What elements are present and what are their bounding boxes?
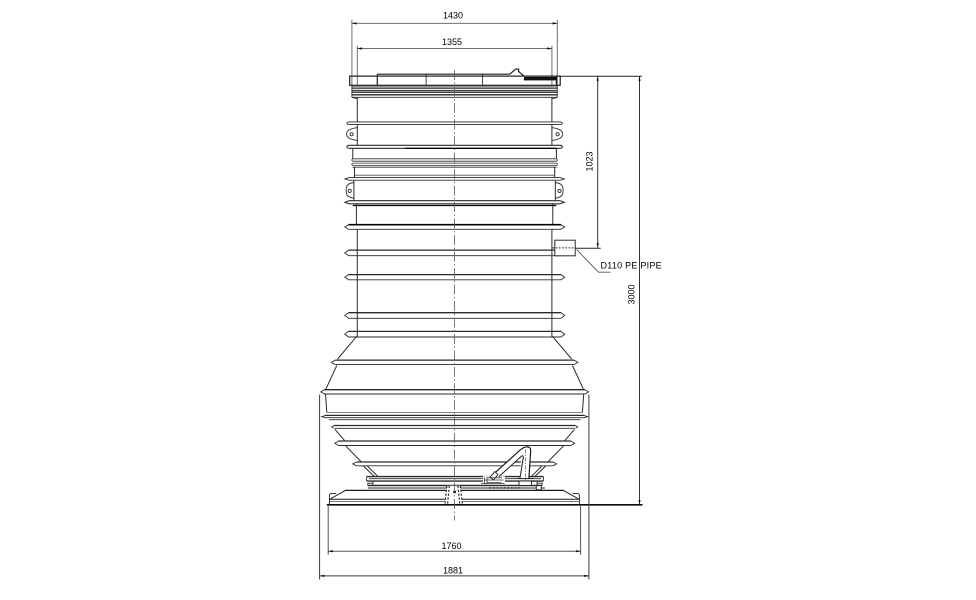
svg-text:1760: 1760	[441, 541, 461, 551]
svg-text:1355: 1355	[442, 37, 462, 47]
svg-text:D110 PE PIPE: D110 PE PIPE	[601, 260, 662, 270]
svg-text:1430: 1430	[443, 11, 463, 21]
svg-text:1023: 1023	[585, 151, 595, 171]
svg-text:1881: 1881	[443, 566, 463, 576]
svg-text:3000: 3000	[627, 284, 637, 304]
